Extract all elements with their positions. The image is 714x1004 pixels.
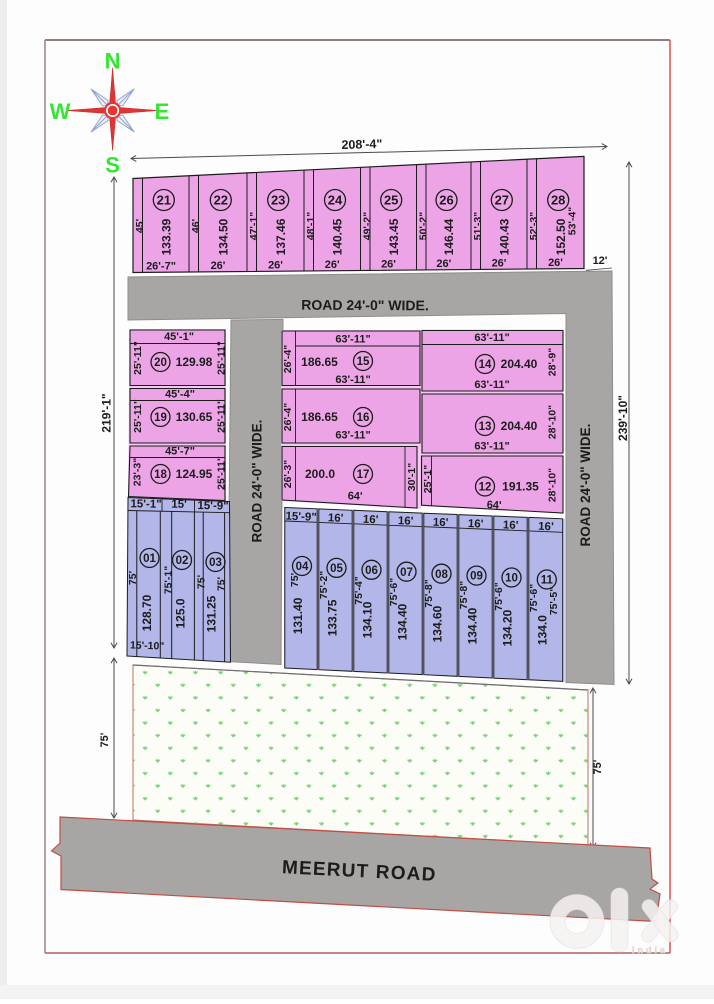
svg-text:63'-11": 63'-11" (335, 374, 370, 386)
svg-text:16': 16' (503, 519, 519, 532)
svg-text:23'-3": 23'-3" (131, 458, 143, 487)
svg-text:75': 75' (592, 759, 604, 774)
svg-text:134.40: 134.40 (395, 603, 409, 640)
svg-text:75'-6": 75'-6" (388, 578, 400, 607)
svg-text:208'-4": 208'-4" (341, 137, 382, 152)
svg-text:75': 75' (99, 732, 111, 747)
svg-text:134.40: 134.40 (466, 607, 480, 644)
svg-text:63'-11": 63'-11" (335, 334, 370, 346)
svg-text:02: 02 (176, 555, 189, 567)
svg-text:N: N (105, 49, 121, 74)
svg-text:63'-11": 63'-11" (474, 441, 509, 453)
svg-text:15: 15 (357, 356, 370, 368)
svg-text:75': 75' (216, 577, 228, 591)
svg-text:05: 05 (330, 563, 343, 575)
svg-text:133.75: 133.75 (325, 599, 339, 636)
svg-text:21: 21 (157, 193, 171, 208)
svg-text:140.45: 140.45 (331, 218, 345, 255)
svg-text:124.95: 124.95 (176, 467, 213, 481)
svg-text:15': 15' (171, 499, 187, 511)
svg-text:03: 03 (209, 557, 222, 569)
svg-text:ROAD 24'-0" WIDE.: ROAD 24'-0" WIDE. (301, 297, 429, 314)
svg-text:48'-1": 48'-1" (305, 212, 317, 241)
svg-text:26': 26' (381, 259, 396, 271)
svg-text:134.60: 134.60 (430, 605, 444, 642)
svg-text:63'-11": 63'-11" (474, 332, 509, 344)
svg-text:E: E (155, 99, 170, 124)
svg-text:15'-9": 15'-9" (197, 500, 228, 513)
svg-text:18: 18 (154, 469, 167, 481)
svg-text:15'-9": 15'-9" (285, 511, 317, 524)
svg-text:129.98: 129.98 (176, 355, 213, 369)
svg-text:26'-4": 26'-4" (282, 345, 294, 374)
svg-text:26': 26' (492, 258, 507, 270)
svg-text:50'-2": 50'-2" (417, 212, 429, 241)
svg-text:ROAD 24'-0" WIDE.: ROAD 24'-0" WIDE. (250, 420, 265, 543)
svg-text:14: 14 (479, 359, 492, 371)
svg-text:28: 28 (551, 193, 565, 208)
svg-text:06: 06 (365, 565, 378, 577)
svg-text:25'-11": 25'-11" (132, 341, 144, 375)
svg-text:08: 08 (435, 569, 448, 581)
svg-text:186.65: 186.65 (301, 410, 338, 424)
svg-text:30'-1": 30'-1" (406, 463, 418, 492)
svg-text:15'-10": 15'-10" (130, 639, 165, 652)
svg-text:46': 46' (190, 219, 202, 233)
svg-text:75'-1": 75'-1" (163, 566, 175, 595)
svg-text:12': 12' (593, 255, 608, 267)
svg-text:75'-4": 75'-4" (353, 576, 365, 605)
svg-text:26': 26' (548, 257, 563, 269)
svg-text:131.40: 131.40 (291, 597, 305, 634)
svg-text:23: 23 (271, 193, 285, 208)
svg-text:131.25: 131.25 (205, 595, 219, 632)
svg-text:133.39: 133.39 (159, 218, 173, 255)
svg-text:51'-3": 51'-3" (472, 212, 484, 241)
svg-text:25'-11": 25'-11" (216, 456, 228, 490)
svg-text:75': 75' (196, 575, 208, 589)
svg-text:10: 10 (505, 573, 518, 585)
svg-text:63'-11": 63'-11" (474, 379, 509, 391)
svg-text:52'-3": 52'-3" (528, 212, 540, 241)
svg-text:26'-3": 26'-3" (282, 460, 294, 489)
svg-text:16': 16' (433, 517, 449, 530)
svg-text:19: 19 (154, 412, 167, 424)
svg-text:130.65: 130.65 (176, 410, 213, 424)
svg-text:219'-1": 219'-1" (100, 393, 114, 432)
svg-text:24: 24 (328, 193, 343, 208)
svg-text:49'-2": 49'-2" (361, 212, 373, 241)
svg-text:63'-11": 63'-11" (335, 430, 370, 442)
svg-text:17: 17 (357, 469, 370, 481)
svg-text:45': 45' (134, 219, 146, 233)
svg-text:16': 16' (328, 512, 344, 525)
svg-text:200.0: 200.0 (305, 467, 335, 481)
svg-text:137.46: 137.46 (274, 218, 288, 255)
svg-text:239'-10": 239'-10" (616, 395, 630, 441)
svg-text:28'-9": 28'-9" (547, 348, 559, 377)
svg-text:134.0: 134.0 (536, 615, 550, 645)
svg-text:26': 26' (211, 260, 226, 272)
svg-text:191.35: 191.35 (502, 480, 539, 494)
svg-text:09: 09 (470, 571, 483, 583)
svg-text:75': 75' (289, 573, 301, 587)
svg-text:75'-6": 75'-6" (493, 582, 505, 611)
svg-text:22: 22 (214, 193, 228, 208)
svg-text:27: 27 (495, 193, 509, 208)
svg-text:26': 26' (436, 258, 451, 270)
svg-text:146.44: 146.44 (442, 218, 456, 255)
svg-text:64': 64' (486, 499, 502, 512)
svg-text:20: 20 (154, 357, 167, 369)
svg-text:134.50: 134.50 (216, 218, 230, 255)
svg-text:25'-1": 25'-1" (422, 465, 434, 494)
svg-text:01: 01 (143, 553, 156, 565)
svg-text:186.65: 186.65 (301, 355, 338, 369)
svg-text:S: S (105, 153, 120, 178)
svg-text:75': 75' (127, 571, 139, 585)
svg-text:25'-11": 25'-11" (216, 399, 228, 433)
svg-text:75'-6": 75'-6" (528, 584, 540, 613)
svg-text:16': 16' (538, 521, 554, 534)
svg-text:75'-8": 75'-8" (423, 579, 435, 608)
svg-text:W: W (50, 99, 71, 124)
svg-text:53'-4": 53'-4" (567, 207, 579, 236)
svg-text:134.10: 134.10 (361, 601, 375, 638)
svg-text:04: 04 (296, 561, 309, 573)
svg-text:75'-2": 75'-2" (318, 571, 330, 600)
svg-text:25'-11": 25'-11" (132, 399, 144, 433)
svg-text:26'-4": 26'-4" (282, 403, 294, 432)
svg-text:47'-1": 47'-1" (248, 212, 260, 241)
svg-text:125.0: 125.0 (174, 598, 188, 628)
svg-text:64': 64' (347, 490, 363, 503)
svg-text:28'-10": 28'-10" (547, 405, 559, 439)
svg-text:28'-10": 28'-10" (547, 468, 559, 502)
svg-text:25'-11": 25'-11" (216, 341, 228, 375)
svg-text:25: 25 (384, 193, 398, 208)
svg-text:75'-5": 75'-5" (548, 587, 560, 616)
svg-text:75'-8": 75'-8" (458, 581, 470, 610)
svg-text:134.20: 134.20 (501, 609, 515, 646)
svg-text:45'-1": 45'-1" (164, 331, 194, 343)
svg-text:26'-7": 26'-7" (146, 261, 176, 273)
svg-text:12: 12 (479, 482, 492, 494)
svg-text:26': 26' (325, 259, 340, 271)
svg-text:India: India (632, 945, 668, 955)
svg-text:128.70: 128.70 (140, 594, 154, 631)
svg-text:ROAD 24'-0" WIDE.: ROAD 24'-0" WIDE. (578, 424, 593, 547)
svg-text:45'-4": 45'-4" (165, 389, 195, 401)
svg-text:143.45: 143.45 (387, 218, 401, 255)
svg-text:204.40: 204.40 (501, 419, 538, 433)
svg-text:26': 26' (268, 260, 283, 272)
svg-text:140.43: 140.43 (497, 218, 511, 255)
svg-text:13: 13 (479, 421, 492, 433)
svg-text:15'-1": 15'-1" (130, 498, 161, 511)
svg-text:204.40: 204.40 (501, 357, 538, 371)
svg-text:07: 07 (400, 567, 413, 579)
svg-text:16': 16' (398, 515, 414, 528)
svg-text:11: 11 (541, 575, 554, 587)
svg-text:26: 26 (439, 193, 453, 208)
svg-text:16': 16' (468, 518, 484, 531)
svg-text:16: 16 (357, 412, 370, 424)
svg-text:16': 16' (363, 514, 379, 527)
svg-text:45'-7": 45'-7" (165, 446, 195, 458)
